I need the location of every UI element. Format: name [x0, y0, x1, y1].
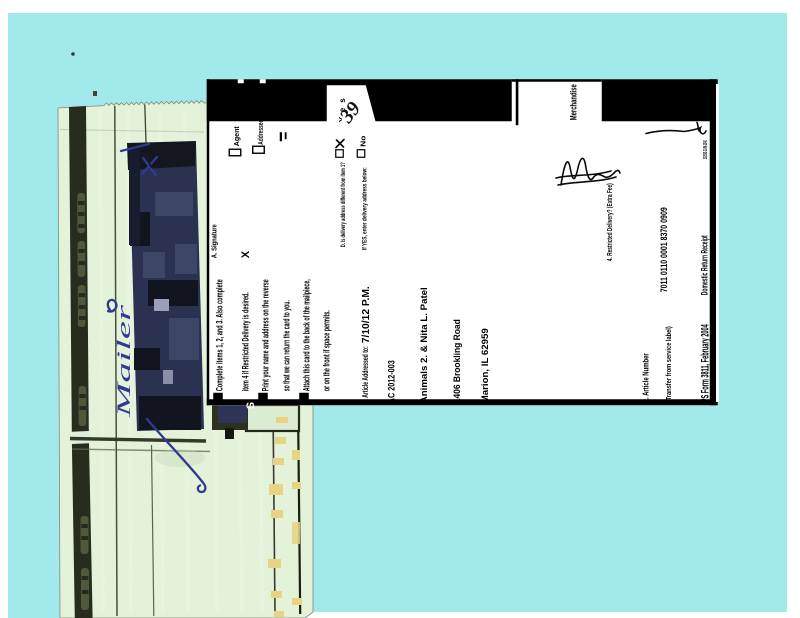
svg-text:39: 39 — [335, 98, 365, 128]
